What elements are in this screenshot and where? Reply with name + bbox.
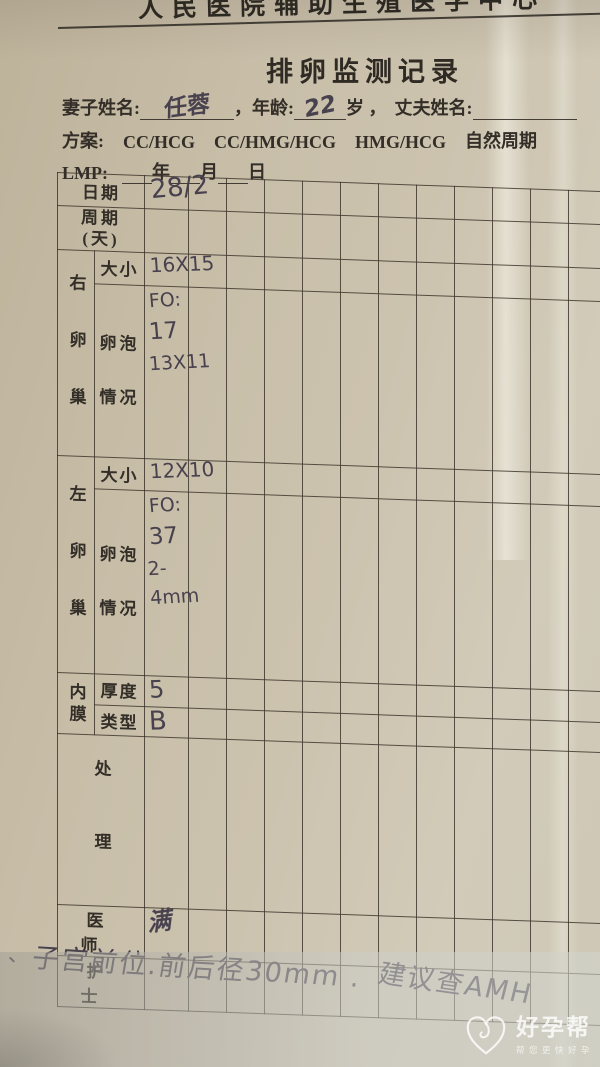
empty-data-cell	[303, 712, 341, 743]
empty-data-cell	[189, 210, 227, 255]
handwritten-footnote: 、子宫前位.前后径30mm .建议查AMH	[8, 936, 600, 975]
empty-data-cell	[569, 223, 600, 268]
empty-data-cell	[227, 739, 265, 911]
empty-data-cell	[227, 178, 265, 212]
wife-name-underline: 任蓉	[140, 97, 234, 120]
empty-data-cell	[379, 683, 417, 715]
date-label-cell: 日期	[58, 173, 145, 209]
watermark-text: 好孕帮 帮您更快好孕	[516, 1016, 594, 1056]
plan-label: 方案:	[62, 127, 104, 153]
follicle-label-line1: 卵泡	[95, 544, 144, 567]
empty-data-cell	[455, 501, 493, 687]
empty-data-cell	[569, 190, 600, 224]
left-follicle-row: 卵泡 情况 FO: 37 2-4mm	[58, 487, 600, 691]
empty-data-cell	[379, 498, 417, 684]
cycle-label-line2: (天)	[58, 227, 144, 251]
empty-data-cell	[227, 678, 265, 710]
plan-option-natural-cycle: 自然周期	[465, 127, 537, 153]
empty-data-cell	[417, 746, 455, 918]
right-size-value: 16X15	[149, 251, 215, 275]
right-follicle-line2: 17	[147, 313, 189, 350]
right-follicle-label-cell: 卵泡 情况	[95, 283, 145, 458]
left-size-value: 12X10	[149, 457, 215, 481]
plan-option-cc-hcg: CC/HCG	[123, 132, 195, 153]
left-follicle-value-cell: FO: 37 2-4mm	[145, 490, 189, 677]
paper-corner-shadow	[0, 1007, 120, 1067]
photographed-form: 人民医院辅助生殖医学中心 排卵监测记录 妻子姓名: 任蓉 ，年龄: 22 岁 ，…	[0, 0, 600, 1067]
left-size-value-cell: 12X10	[145, 458, 189, 492]
empty-data-cell	[265, 494, 303, 680]
empty-data-cell	[265, 180, 303, 214]
empty-data-cell	[417, 468, 455, 501]
empty-data-cell	[417, 262, 455, 296]
heart-logo-icon	[463, 1013, 509, 1059]
empty-data-cell	[493, 188, 531, 222]
endometrium-label: 内膜	[64, 680, 89, 727]
right-size-value-cell: 16X15	[145, 252, 189, 287]
empty-data-cell	[531, 720, 569, 751]
empty-data-cell	[189, 677, 227, 709]
empty-data-cell	[531, 472, 569, 505]
endometrium-label-cell: 内膜	[58, 672, 95, 734]
empty-data-cell	[265, 740, 303, 912]
empty-data-cell	[379, 714, 417, 745]
empty-data-cell	[265, 462, 303, 495]
empty-data-cell	[265, 213, 303, 258]
age-label: ，年龄:	[234, 94, 294, 120]
empty-data-cell	[569, 300, 600, 474]
follicle-label-line1: 卵泡	[95, 333, 144, 356]
left-follicle-line3: 2-4mm	[147, 553, 191, 612]
type-value-cell: B	[145, 706, 189, 738]
empty-data-cell	[303, 681, 341, 713]
empty-data-cell	[341, 292, 379, 466]
empty-data-cell	[493, 502, 531, 688]
empty-data-cell	[531, 689, 569, 721]
empty-data-cell	[455, 296, 493, 470]
empty-data-cell	[303, 181, 341, 215]
empty-data-cell	[189, 287, 227, 461]
empty-data-cell	[265, 256, 303, 290]
empty-data-cell	[493, 264, 531, 298]
empty-data-cell	[531, 504, 569, 690]
left-follicle-line2: 37	[147, 518, 189, 555]
empty-data-cell	[227, 709, 265, 740]
empty-data-cell	[531, 299, 569, 473]
empty-data-cell	[341, 182, 379, 216]
empty-data-cell	[265, 289, 303, 463]
form-title: 排卵监测记录	[165, 50, 565, 89]
watermark-tagline: 帮您更快好孕	[516, 1044, 594, 1056]
empty-data-cell	[569, 267, 600, 301]
empty-data-cell	[227, 255, 265, 289]
husband-name-label: 丈夫姓名:	[395, 94, 473, 120]
empty-data-cell	[265, 679, 303, 711]
empty-data-cell	[493, 687, 531, 719]
empty-data-cell	[493, 470, 531, 503]
wife-name-value: 任蓉	[164, 94, 210, 120]
empty-data-cell	[227, 493, 265, 679]
empty-data-cell	[455, 686, 493, 718]
treatment-row: 处理	[58, 733, 600, 923]
empty-data-cell	[417, 500, 455, 686]
empty-data-cell	[303, 214, 341, 259]
empty-data-cell	[341, 682, 379, 714]
date-value: 28/2	[149, 172, 210, 203]
empty-data-cell	[379, 466, 417, 499]
thickness-label: 厚度	[95, 673, 145, 706]
treatment-label: 处理	[89, 735, 114, 906]
right-follicle-value-cell: FO: 17 13X11	[145, 285, 189, 460]
left-ovary-label-cell: 左卵巢	[58, 455, 95, 673]
empty-data-cell	[531, 750, 569, 922]
date-value-cell: 28/2	[145, 176, 189, 211]
right-follicle-row: 卵泡 情况 FO: 17 13X11	[58, 282, 600, 474]
monitoring-table-wrap: 日期 28/2 周期 (天) 右卵巢 大小 16X15 卵泡 情	[57, 172, 600, 1002]
empty-data-cell	[379, 744, 417, 916]
empty-data-cell	[189, 738, 227, 910]
empty-data-cell	[303, 464, 341, 497]
empty-data-cell	[569, 505, 600, 691]
watermark: 好孕帮 帮您更快好孕	[463, 1013, 594, 1059]
empty-data-cell	[227, 288, 265, 462]
empty-data-cell	[531, 266, 569, 300]
cycle-label-cell: 周期 (天)	[58, 206, 145, 253]
follicle-label-line2: 情况	[95, 597, 144, 620]
empty-data-cell	[455, 263, 493, 297]
left-follicle-label-cell: 卵泡 情况	[95, 488, 145, 675]
empty-data-cell	[145, 736, 189, 909]
right-ovary-label: 右卵巢	[64, 261, 89, 445]
thickness-value: 5	[148, 677, 165, 702]
empty-data-cell	[569, 690, 600, 722]
plan-option-hmg-hcg: HMG/HCG	[355, 132, 446, 153]
right-follicle-line1: FO:	[148, 285, 189, 316]
right-ovary-label-cell: 右卵巢	[58, 249, 95, 456]
type-label: 类型	[95, 704, 145, 736]
left-follicle-line1: FO:	[148, 490, 189, 521]
right-follicle-line3: 13X11	[148, 348, 189, 379]
empty-data-cell	[455, 469, 493, 502]
right-size-label: 大小	[95, 250, 145, 285]
left-ovary-label: 左卵巢	[64, 472, 89, 656]
empty-data-cell	[417, 185, 455, 219]
empty-data-cell	[455, 717, 493, 748]
type-value: B	[148, 708, 167, 734]
age-value: 22	[304, 94, 336, 122]
empty-data-cell	[303, 258, 341, 292]
empty-data-cell	[417, 685, 455, 717]
treatment-label-cell: 处理	[58, 733, 145, 907]
empty-data-cell	[417, 716, 455, 747]
empty-data-cell	[455, 747, 493, 919]
left-size-label: 大小	[95, 456, 145, 490]
empty-data-cell	[531, 222, 569, 267]
follicle-label-line2: 情况	[95, 386, 144, 409]
empty-data-cell	[341, 259, 379, 293]
empty-data-cell	[341, 743, 379, 915]
empty-data-cell	[341, 497, 379, 683]
empty-data-cell	[379, 217, 417, 262]
empty-data-cell	[455, 219, 493, 264]
footnote-tick: 、	[8, 938, 30, 967]
empty-data-cell	[493, 221, 531, 266]
patient-info: 妻子姓名: 任蓉 ，年龄: 22 岁 ， 丈夫姓名: 方案: CC/HCG CC…	[62, 94, 597, 184]
empty-data-cell	[493, 297, 531, 471]
empty-data-cell	[227, 211, 265, 256]
empty-data-cell	[531, 189, 569, 223]
husband-name-underline	[473, 97, 577, 120]
empty-data-cell	[493, 748, 531, 920]
monitoring-table: 日期 28/2 周期 (天) 右卵巢 大小 16X15 卵泡 情	[57, 172, 600, 1026]
empty-data-cell	[455, 186, 493, 220]
empty-data-cell	[303, 291, 341, 465]
plan-option-cc-hmg-hcg: CC/HMG/HCG	[214, 132, 336, 153]
empty-data-cell	[341, 215, 379, 260]
empty-data-cell	[265, 710, 303, 741]
empty-data-cell	[379, 260, 417, 294]
wife-name-label: 妻子姓名:	[62, 94, 140, 120]
age-unit: 岁 ，	[346, 94, 387, 120]
empty-data-cell	[493, 718, 531, 749]
empty-data-cell	[145, 209, 189, 254]
plan-line: 方案: CC/HCG CC/HMG/HCG HMG/HCG 自然周期	[62, 127, 597, 153]
empty-data-cell	[303, 496, 341, 682]
empty-data-cell	[341, 465, 379, 498]
empty-data-cell	[417, 295, 455, 469]
empty-data-cell	[569, 721, 600, 752]
empty-data-cell	[569, 751, 600, 923]
empty-data-cell	[379, 293, 417, 467]
empty-data-cell	[303, 742, 341, 914]
doctor-signature: 满	[148, 907, 173, 934]
empty-data-cell	[417, 218, 455, 263]
patient-info-line1: 妻子姓名: 任蓉 ，年龄: 22 岁 ， 丈夫姓名:	[62, 94, 597, 120]
empty-data-cell	[379, 184, 417, 218]
empty-data-cell	[341, 713, 379, 744]
empty-data-cell	[189, 708, 227, 739]
thickness-value-cell: 5	[145, 675, 189, 708]
empty-data-cell	[569, 473, 600, 506]
cycle-label-line1: 周期	[58, 206, 144, 230]
empty-data-cell	[227, 461, 265, 494]
watermark-brand: 好孕帮	[516, 1016, 591, 1039]
age-underline: 22	[294, 97, 346, 120]
